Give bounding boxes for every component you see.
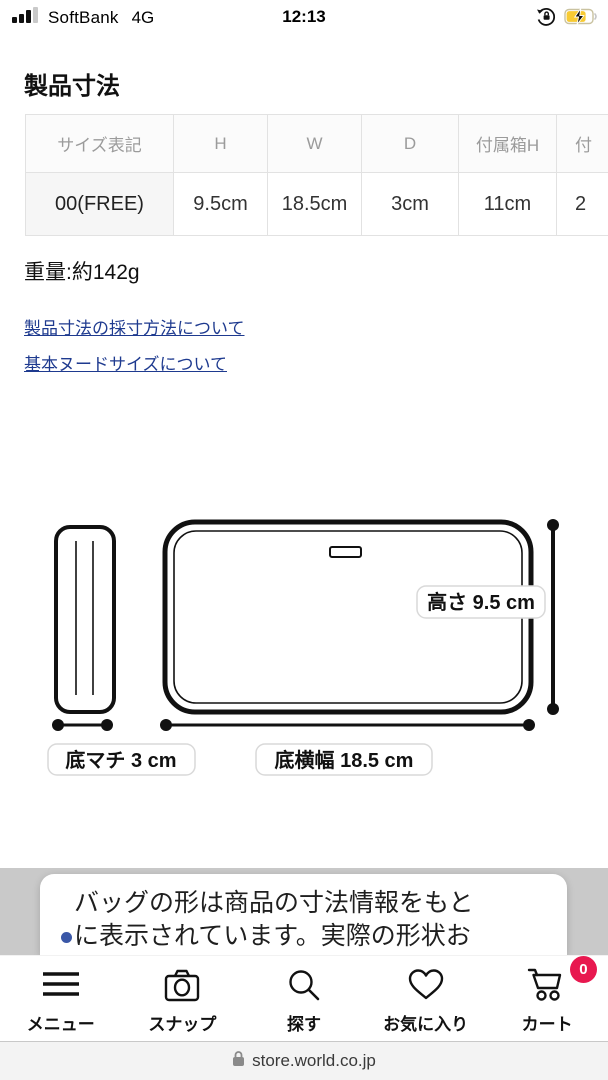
phone-screen: SoftBank 4G 12:13 (0, 0, 608, 1080)
cell-box-h: 11cm (459, 173, 557, 236)
camera-icon (163, 965, 201, 1005)
status-bar: SoftBank 4G 12:13 (0, 0, 608, 40)
weight-text: 重量:約142g (24, 256, 140, 286)
depth-label: 底マチ 3 cm (65, 748, 176, 772)
nav-favorites-label: お気に入り (383, 1010, 468, 1035)
nav-snap[interactable]: スナップ (122, 956, 244, 1041)
notice-line-1: バッグの形は商品の寸法情報をもと (74, 887, 544, 920)
battery-charging-icon (564, 8, 598, 30)
cart-badge: 0 (570, 956, 597, 983)
nav-cart[interactable]: カート 0 (486, 956, 608, 1041)
size-table-header-row: サイズ表記 H W D 付属箱H 付 (26, 115, 608, 173)
url-text: store.world.co.jp (252, 1051, 376, 1071)
height-label: 高さ 9.5 cm (427, 590, 535, 614)
address-bar[interactable]: store.world.co.jp (0, 1041, 608, 1080)
heart-icon (407, 965, 445, 1005)
col-w: W (268, 115, 362, 173)
nav-menu[interactable]: メニュー (0, 956, 122, 1041)
cart-icon (527, 965, 567, 1005)
measuring-method-link[interactable]: 製品寸法の採寸方法について (24, 314, 245, 339)
cell-d: 3cm (362, 173, 459, 236)
nav-search[interactable]: 探す (243, 956, 365, 1041)
nav-cart-label: カート (522, 1010, 573, 1035)
nav-favorites[interactable]: お気に入り (365, 956, 487, 1041)
cell-h: 9.5cm (174, 173, 268, 236)
notice-card: バッグの形は商品の寸法情報をもと に表示されています。実際の形状お (40, 874, 567, 955)
size-table[interactable]: サイズ表記 H W D 付属箱H 付 00(FREE) 9.5cm 18.5cm… (25, 114, 608, 236)
status-right (536, 6, 598, 32)
col-box-h: 付属箱H (459, 115, 557, 173)
notice-line-2: に表示されています。実際の形状お (74, 920, 544, 953)
lock-icon (232, 1050, 245, 1072)
bag-dimension-diagram: 高さ 9.5 cm 底マチ 3 cm 底横幅 18.5 cm (0, 495, 608, 795)
col-h: H (174, 115, 268, 173)
width-dimension-line (160, 719, 535, 731)
nav-snap-label: スナップ (148, 1010, 216, 1035)
col-box-w-truncated: 付 (557, 115, 608, 173)
depth-label-pill: 底マチ 3 cm (48, 744, 195, 775)
col-size-label: サイズ表記 (26, 115, 174, 173)
clock: 12:13 (0, 7, 608, 27)
height-label-pill: 高さ 9.5 cm (417, 586, 545, 618)
depth-dimension-line (52, 719, 113, 731)
nav-search-label: 探す (287, 1010, 321, 1035)
nav-menu-label: メニュー (27, 1010, 95, 1035)
cell-size: 00(FREE) (26, 173, 174, 236)
col-d: D (362, 115, 459, 173)
bag-side-view (56, 527, 114, 712)
cell-w: 18.5cm (268, 173, 362, 236)
page-title: 製品寸法 (24, 66, 120, 101)
height-dimension-line (547, 519, 559, 715)
width-label: 底横幅 18.5 cm (275, 748, 414, 772)
menu-icon (42, 965, 80, 1005)
bottom-nav: メニュー スナップ 探す (0, 955, 608, 1041)
nude-size-link[interactable]: 基本ヌードサイズについて (24, 350, 227, 375)
bullet-icon (61, 932, 72, 943)
size-table-data-row: 00(FREE) 9.5cm 18.5cm 3cm 11cm 2 (26, 173, 608, 236)
search-icon (287, 965, 321, 1005)
orientation-lock-icon (536, 6, 557, 32)
cell-box-w-truncated: 2 (557, 173, 608, 236)
width-label-pill: 底横幅 18.5 cm (256, 744, 432, 775)
notice-text: バッグの形は商品の寸法情報をもと に表示されています。実際の形状お (74, 887, 544, 953)
bag-clasp (330, 547, 361, 557)
